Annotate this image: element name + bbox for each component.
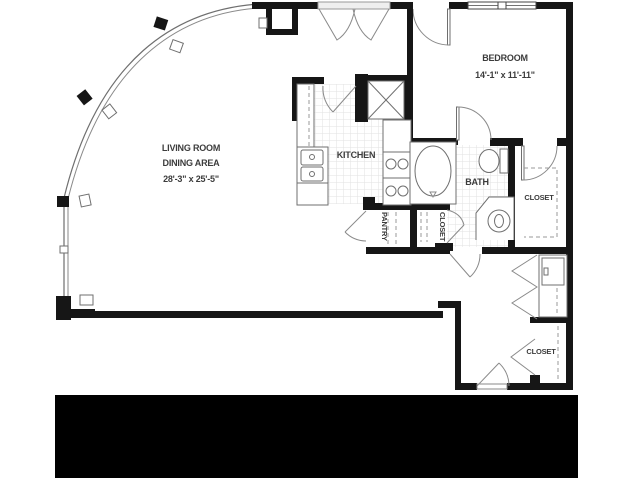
corner-block-vertical [56,296,71,320]
kitchen-lower-cabinet [297,183,328,205]
bedroom-closet-label: CLOSET [524,193,554,202]
pantry: PANTRY [345,211,396,245]
pantry-door-leaf [345,211,366,232]
bedroom-entry-door [413,9,450,45]
kitchen-right-counter [383,120,411,152]
window-mullion-marker-3 [79,194,91,207]
entry-bottom-wall-left [455,383,477,390]
french-door-leaf-left [319,9,355,40]
bedroom-window [468,2,536,9]
window-center-mullion [498,2,506,9]
pantry-door-swing-arc [345,232,366,241]
curved-window-wall [57,4,258,305]
toilet-tank [500,149,508,173]
burner-2 [398,159,408,169]
bath-hall-door-swing-arc [470,254,480,277]
french-door-leaf-right [353,9,389,40]
entry-threshold [477,384,507,389]
shaft-opening [272,9,292,29]
bedroom-closet-door-leaf [522,146,525,180]
floorplan-drawing: KITCHEN PANTRY CLOSET BATH CL [0,0,640,480]
curtain-wall-inner-line [68,8,258,298]
closet-top-wall-left [490,138,523,146]
shaft-top-wall [368,75,411,81]
column-marker-2 [77,89,93,105]
pantry-right-wall [410,203,417,254]
window-mullion-marker-5 [80,295,93,305]
bedroom-door-swing-arc [413,9,449,45]
lower-closet-jamb-stub [530,375,540,383]
top-wall-mid [390,2,413,9]
sink-drain-bottom [310,172,315,177]
utility-bifold-doors [512,255,537,319]
bath-label: BATH [465,177,489,187]
pantry-label: PANTRY [380,212,389,241]
burner-4 [398,186,408,196]
bath-door-swing-arc [458,107,491,140]
top-wall-right-1 [449,2,468,9]
living-room-label-line2: DINING AREA [163,158,221,168]
column-marker-1 [153,16,168,30]
column-marker-3 [57,196,69,207]
living-room-dimensions: 28'-3" x 25'-5" [163,174,219,184]
bedroom-closet-door-swing-arc [523,146,557,180]
utility-lower-closet-divider [530,317,573,323]
linen-closet-bottom-stub [435,243,453,251]
bath-hall-door-leaf [450,254,470,277]
shaft-left-pillar [355,74,368,122]
south-wall-right [482,247,573,254]
toilet-bowl [479,150,499,173]
bath-door-leaf [457,107,460,140]
entry-door [477,363,509,389]
window-mullion-marker-1 [170,40,184,53]
utility-closet [512,255,567,319]
bedroom-dimensions: 14'-1" x 11'-11" [475,70,535,80]
bedroom-door-leaf [448,9,451,45]
vanity-sink-drain [495,215,504,228]
corner-block-horizontal [71,309,95,318]
window-mullion-marker-4 [60,246,68,253]
entry-door-leaf [477,363,499,386]
living-room-label-line1: LIVING ROOM [162,143,220,153]
bathtub-basin [415,146,451,196]
sink-drain-top [310,155,315,160]
entry-bottom-wall-right [507,383,573,390]
burner-3 [386,186,396,196]
linen-closet-label: CLOSET [438,212,447,242]
living-room-bottom-wall [90,311,443,318]
burner-1 [386,159,396,169]
top-wall-right-2 [536,2,567,9]
bedroom-closet: CLOSET [522,146,558,237]
entry-hall-left-wall [455,301,461,390]
entry-closet-bifold-doors [511,339,535,375]
floorplan-page: KITCHEN PANTRY CLOSET BATH CL [0,0,640,480]
entry-closet: CLOSET [511,326,558,380]
bedroom-closet-shelf-dashed [524,168,557,237]
french-door-header [318,2,390,9]
kitchen-label: KITCHEN [337,150,376,160]
footer-black-bar [55,395,578,478]
right-exterior-wall [566,2,573,390]
shaft-side-tab [259,18,267,28]
french-doors [318,2,390,40]
shaft-right-wall [404,81,411,120]
closet-top-wall-right [557,138,566,146]
entry-closet-label: CLOSET [526,347,556,356]
entry-door-swing-arc [499,363,509,386]
washer-dryer-handle [544,268,548,275]
bedroom-label: BEDROOM [482,53,528,63]
